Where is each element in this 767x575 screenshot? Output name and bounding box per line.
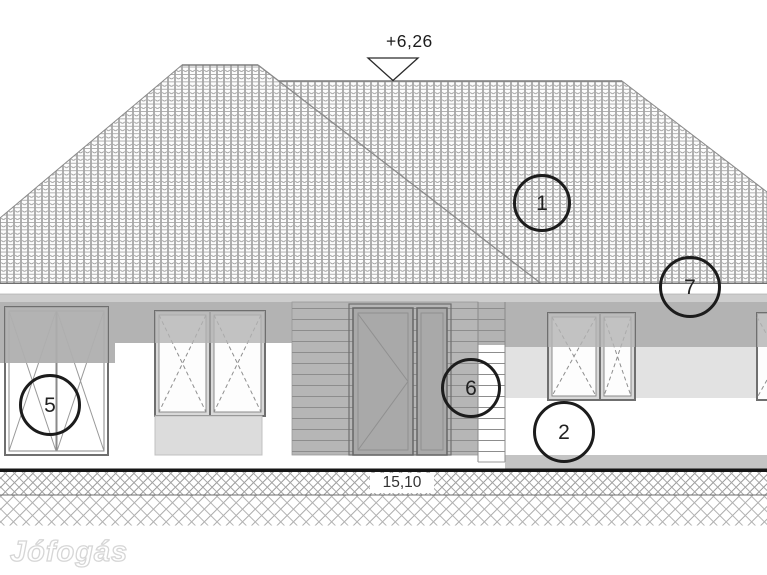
mid-double-window [155, 311, 265, 455]
watermark: Jófogás [10, 536, 128, 569]
marker-number: 7 [684, 277, 696, 298]
marker-circle-7: 7 [659, 256, 721, 318]
ground-hatch-lower [0, 496, 767, 526]
marker-circle-2: 2 [533, 401, 595, 463]
roof [0, 65, 767, 284]
roof-level-label: +6,26 [386, 31, 433, 52]
wall [0, 302, 767, 470]
marker-number: 6 [465, 378, 477, 399]
marker-number: 2 [558, 422, 570, 443]
plinth [505, 455, 767, 470]
marker-number: 1 [536, 193, 548, 214]
elevation-drawing: +6,26 15,10 17562 Jófogás [0, 0, 767, 575]
edge-partial-window [757, 313, 767, 400]
marker-number: 5 [44, 395, 56, 416]
level-marker-icon [368, 58, 418, 81]
fascia-band [0, 284, 767, 302]
shadow-over-mid-window [155, 311, 265, 343]
marker-circle-6: 6 [441, 358, 501, 418]
entrance-door [349, 304, 451, 455]
width-dimension-label: 15,10 [370, 473, 434, 493]
right-window-pair [548, 313, 635, 400]
mid-window-sill-panel [155, 416, 262, 455]
ground-line [0, 469, 767, 473]
marker-circle-5: 5 [19, 374, 81, 436]
marker-circle-1: 1 [513, 174, 571, 232]
shadow-over-right-window [548, 313, 635, 347]
shadow-over-left-door [5, 307, 108, 363]
